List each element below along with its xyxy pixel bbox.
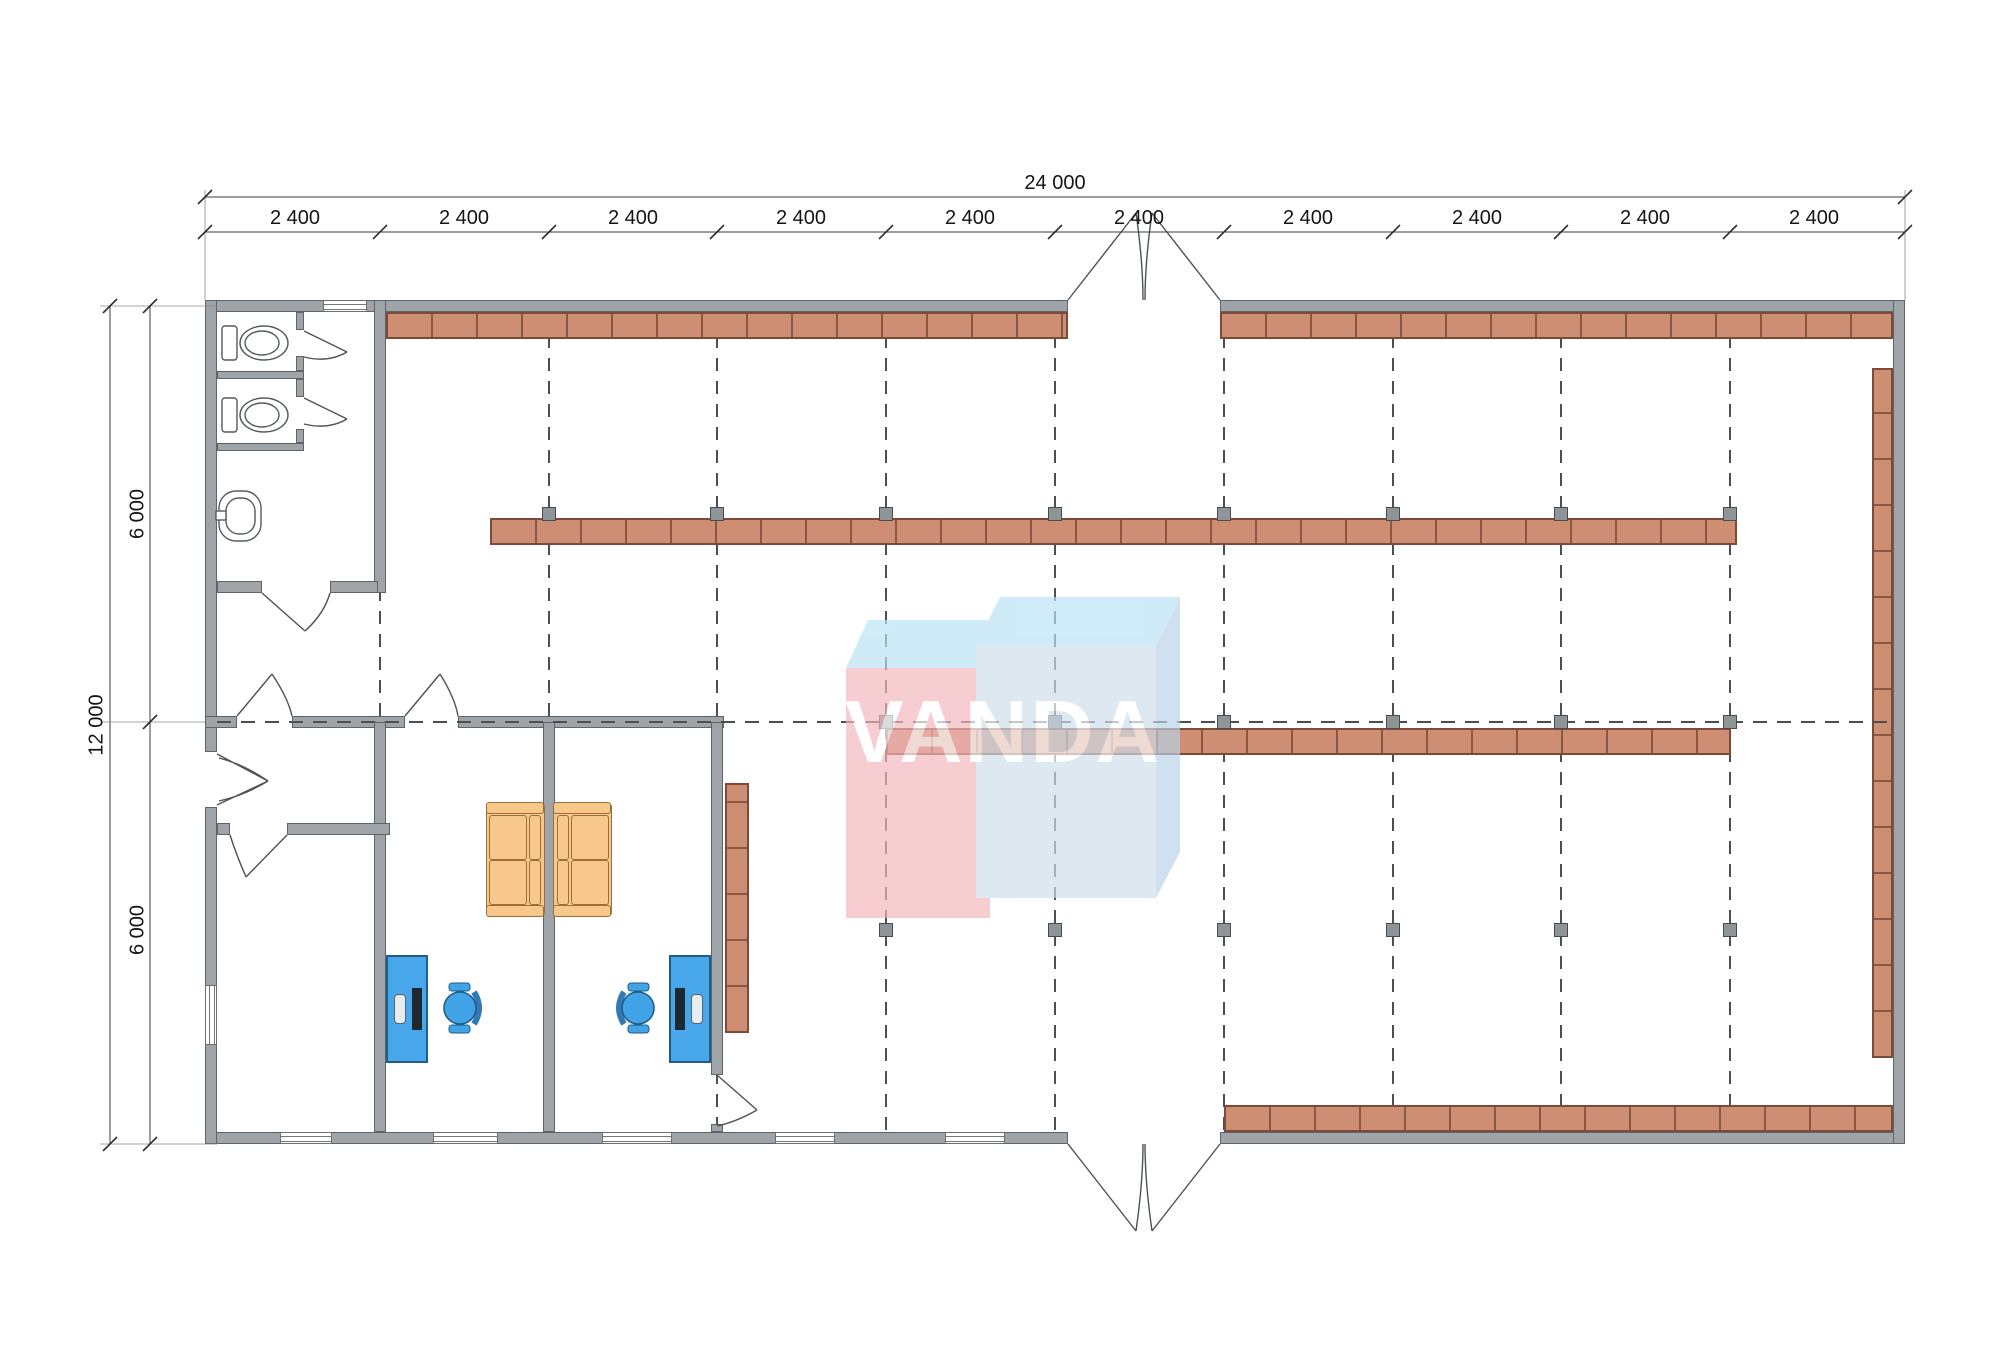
shelf-row-bottom-right xyxy=(1224,1105,1893,1132)
wall-right xyxy=(1893,300,1905,1144)
sanitary-fixtures xyxy=(216,326,288,541)
door-bottom-cusp-right xyxy=(1145,1144,1152,1231)
dim-label-bay: 2 400 xyxy=(1283,207,1333,230)
dim-label-bay: 2 400 xyxy=(1452,207,1502,230)
hall-wall-3-upper xyxy=(711,722,723,1075)
dimension-tick xyxy=(103,299,117,313)
door-stall-2 xyxy=(304,398,347,426)
wall-top-right xyxy=(1220,300,1905,312)
window-icon xyxy=(205,985,217,1045)
dimension-tick xyxy=(143,1137,157,1151)
wc-bottom-wall-a xyxy=(217,581,262,593)
couch-right-seat-2 xyxy=(571,860,609,905)
wc-stall-partition-a xyxy=(296,312,304,330)
couch-left-back-2 xyxy=(529,860,541,905)
toilet-1-tank-icon xyxy=(222,326,237,360)
toilet-2-bowl-icon xyxy=(240,398,288,432)
shelf-row-top-left xyxy=(386,312,1068,339)
dim-label-height-segment: 6 000 xyxy=(127,489,150,539)
column-marker xyxy=(1386,715,1400,729)
toilet-2-bowl-inner xyxy=(245,403,279,427)
sink-icon xyxy=(219,491,261,541)
shelf-row-middle-upper xyxy=(490,518,1737,545)
shelf-right-wall xyxy=(1872,368,1893,1058)
chair-2-armrest-top xyxy=(628,983,649,991)
dim-extension-horizontal xyxy=(100,306,217,1144)
column-marker xyxy=(1048,715,1062,729)
couch-right-armrest-top xyxy=(553,802,611,814)
dim-label-overall-width: 24 000 xyxy=(1024,172,1085,195)
sink-basin-inner xyxy=(226,498,255,534)
desk-1-keyboard-icon xyxy=(394,994,406,1024)
door-bottom-right-leaf xyxy=(1152,1144,1220,1231)
hall-wall-3-stub xyxy=(711,1124,723,1132)
column-marker xyxy=(1554,715,1568,729)
wc-stall-partition-b xyxy=(296,356,304,371)
couch-right-armrest-bottom xyxy=(553,905,611,917)
door-left-entry-leaf-2 xyxy=(217,781,268,805)
couch-left-seat-2 xyxy=(489,860,527,905)
couch-left-back-1 xyxy=(529,815,541,860)
watermark-blue-box-top xyxy=(976,597,1180,645)
door-vestibule xyxy=(230,835,287,877)
column-marker xyxy=(1554,507,1568,521)
shelf-row-middle-lower xyxy=(886,728,1731,755)
column-marker xyxy=(1217,923,1231,937)
dimension-tick xyxy=(1048,225,1062,239)
dim-label-bay: 2 400 xyxy=(1789,207,1839,230)
chair-2-seat xyxy=(622,992,654,1024)
dimension-tick xyxy=(710,225,724,239)
dim-label-bay: 2 400 xyxy=(270,207,320,230)
dimension-tick xyxy=(143,299,157,313)
plan-linework: VANDA xyxy=(0,0,2000,1358)
chair-1-armrest-top xyxy=(449,983,470,991)
column-marker xyxy=(1386,923,1400,937)
dim-label-bay: 2 400 xyxy=(608,207,658,230)
dimension-tick xyxy=(143,715,157,729)
door-hall-wall-3 xyxy=(717,1075,757,1126)
column-marker xyxy=(1217,507,1231,521)
dimension-tick xyxy=(373,225,387,239)
watermark: VANDA xyxy=(845,597,1180,918)
dim-label-overall-height: 12 000 xyxy=(86,694,109,755)
desk-1-computer-icon xyxy=(412,988,422,1030)
dimension-tick xyxy=(1898,225,1912,239)
column-marker xyxy=(879,507,893,521)
wc-stall-divider-1 xyxy=(217,371,304,379)
door-bottom-cusp-left xyxy=(1136,1144,1143,1231)
couch-right-back-2 xyxy=(557,860,569,905)
door-stall-1 xyxy=(304,331,347,359)
couch-left-armrest-bottom xyxy=(486,905,544,917)
watermark-pink-box xyxy=(846,668,990,918)
couch-left-seat-1 xyxy=(489,815,527,860)
dim-label-bay: 2 400 xyxy=(945,207,995,230)
chair-2-armrest-bottom xyxy=(628,1025,649,1033)
dim-label-height-segment: 6 000 xyxy=(127,905,150,955)
dim-label-bay: 2 400 xyxy=(439,207,489,230)
dimension-tick xyxy=(879,225,893,239)
shelf-row-top-right xyxy=(1220,312,1893,339)
wall-bottom-right xyxy=(1220,1132,1905,1144)
window-icon xyxy=(775,1132,835,1144)
couch-left-armrest-top xyxy=(486,802,544,814)
dim-label-bay: 2 400 xyxy=(1620,207,1670,230)
chair-2-back xyxy=(619,992,624,1024)
door-middle-1 xyxy=(237,674,292,716)
window-icon xyxy=(433,1132,498,1144)
dimension-tick xyxy=(1386,225,1400,239)
dimension-tick xyxy=(103,1137,117,1151)
desk-2-computer-icon xyxy=(675,988,685,1030)
column-marker xyxy=(879,923,893,937)
office-divider-1 xyxy=(374,722,386,1132)
vestibule-wall-b xyxy=(287,823,390,835)
wc-stall-partition-d xyxy=(296,429,304,443)
dim-label-bay: 2 400 xyxy=(1114,207,1164,230)
column-marker xyxy=(1386,507,1400,521)
floor-plan: VANDA 24 000 12 000 2 4002 4002 4002 400… xyxy=(0,0,2000,1358)
chair-1-back xyxy=(474,992,479,1024)
toilet-1-bowl-inner xyxy=(245,331,279,355)
wc-stall-divider-2 xyxy=(217,443,304,451)
column-marker xyxy=(1048,923,1062,937)
couch-right-seat-1 xyxy=(571,815,609,860)
dim-label-bay: 2 400 xyxy=(776,207,826,230)
watermark-pink-box-top xyxy=(846,620,1012,668)
wall-left-upper xyxy=(205,300,217,752)
column-marker xyxy=(1217,715,1231,729)
column-marker xyxy=(1723,923,1737,937)
dimension-tick xyxy=(198,190,212,204)
column-marker xyxy=(710,507,724,521)
window-icon xyxy=(602,1132,672,1144)
couch-right-back-1 xyxy=(557,815,569,860)
wc-bottom-wall-b xyxy=(330,581,378,593)
door-middle-2 xyxy=(405,674,458,716)
chair-1-armrest-bottom xyxy=(449,1025,470,1033)
door-left-entry-leaf-1 xyxy=(217,754,268,781)
chair-1-seat xyxy=(444,992,476,1024)
wc-stall-partition-c xyxy=(296,379,304,397)
wc-right-wall xyxy=(374,300,386,593)
sink-tap-icon xyxy=(216,511,226,520)
dimension-tick xyxy=(1898,190,1912,204)
toilet-2-tank-icon xyxy=(222,398,237,432)
door-wc-room xyxy=(262,593,330,631)
dimension-tick xyxy=(1723,225,1737,239)
column-marker xyxy=(1554,923,1568,937)
watermark-blue-box xyxy=(976,645,1156,898)
column-marker xyxy=(542,507,556,521)
dimension-tick xyxy=(1217,225,1231,239)
window-icon xyxy=(280,1132,332,1144)
dimension-tick xyxy=(1554,225,1568,239)
office-divider-2 xyxy=(543,722,555,1132)
dimension-tick xyxy=(198,225,212,239)
dimension-tick xyxy=(542,225,556,239)
window-icon xyxy=(945,1132,1005,1144)
door-bottom-left-leaf xyxy=(1068,1144,1136,1231)
shelf-office-wall xyxy=(725,783,749,1033)
desk-2-keyboard-icon xyxy=(691,994,703,1024)
couch-right xyxy=(553,802,612,917)
column-marker xyxy=(1723,507,1737,521)
toilet-1-bowl-icon xyxy=(240,326,288,360)
column-marker xyxy=(879,715,893,729)
wall-left-lower xyxy=(205,807,217,1144)
vestibule-wall-a xyxy=(217,823,230,835)
window-icon xyxy=(323,300,367,312)
column-marker xyxy=(1048,507,1062,521)
column-marker xyxy=(1723,715,1737,729)
couch-left xyxy=(486,802,545,917)
